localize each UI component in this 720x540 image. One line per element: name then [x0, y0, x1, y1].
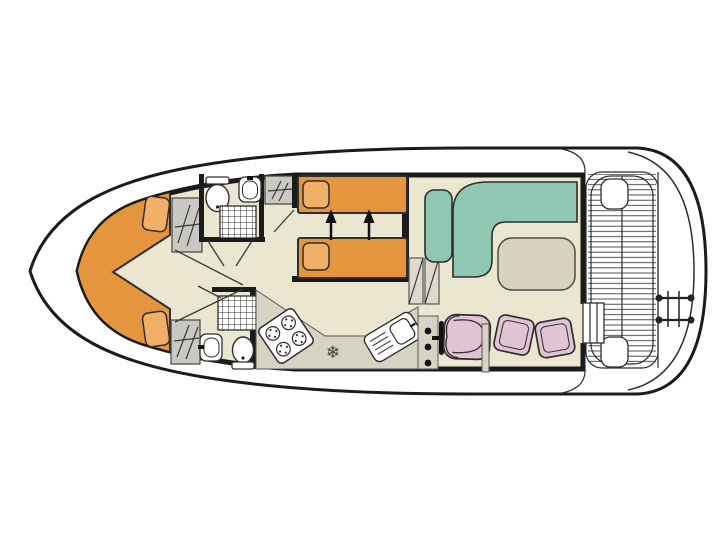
corner-seat	[601, 337, 628, 367]
shower-icon	[220, 206, 256, 238]
washbasin-icon	[198, 334, 222, 361]
wardrobe	[265, 176, 295, 204]
pillow	[303, 243, 329, 270]
gauge-dot	[425, 328, 432, 335]
pillow	[303, 181, 329, 208]
saloon-table	[498, 238, 575, 290]
fridge-freezer-icon: ❄	[326, 343, 340, 363]
stern-door-steps	[583, 303, 604, 343]
shower-icon	[218, 296, 256, 330]
boat-floorplan: ❄	[0, 0, 720, 540]
bench-seat	[425, 190, 452, 262]
boat-floorplan-canvas: ❄	[0, 0, 720, 540]
seat-cushion	[493, 314, 536, 357]
wardrobe	[171, 320, 200, 364]
divider	[482, 324, 489, 372]
corner-seat	[601, 179, 628, 209]
washbasin-icon	[239, 176, 261, 202]
gauge-dot	[425, 344, 432, 351]
toilet-icon	[232, 337, 254, 369]
pillow	[142, 310, 170, 347]
gauge-dot	[425, 360, 432, 367]
wardrobe	[172, 198, 202, 252]
pillow	[142, 195, 170, 232]
seat-cushion	[534, 317, 576, 359]
